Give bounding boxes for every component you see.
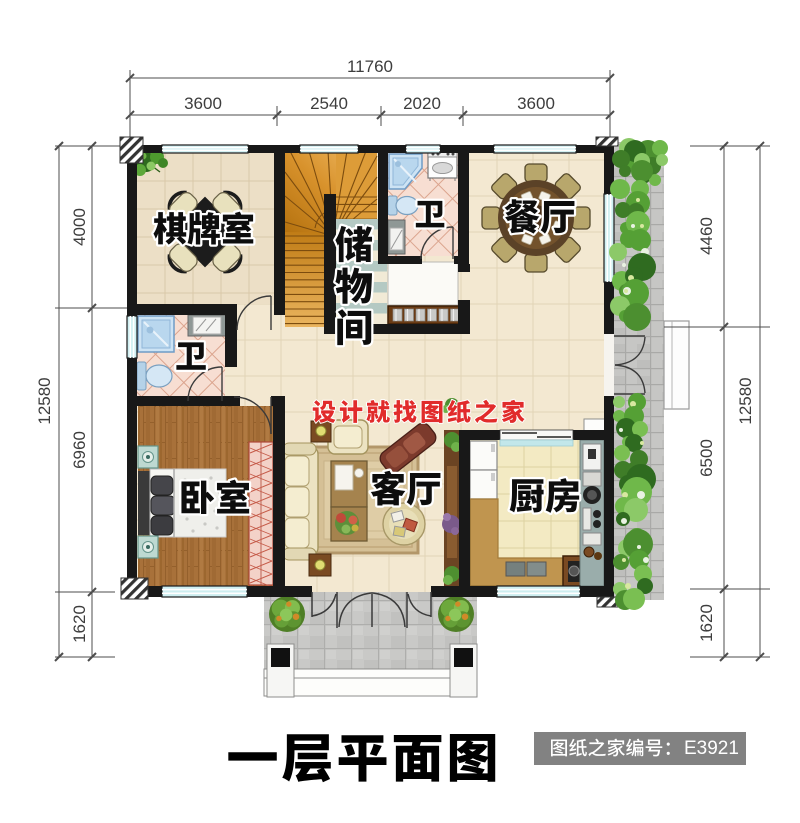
svg-text:1620: 1620 [697, 604, 716, 642]
svg-text:2020: 2020 [403, 94, 441, 113]
svg-text:4000: 4000 [70, 208, 89, 246]
svg-text:3600: 3600 [517, 94, 555, 113]
svg-text:2540: 2540 [310, 94, 348, 113]
svg-text:11760: 11760 [347, 57, 393, 76]
svg-text:12580: 12580 [35, 377, 54, 424]
svg-text:4460: 4460 [697, 217, 716, 255]
svg-text:1620: 1620 [70, 605, 89, 643]
svg-text:6960: 6960 [70, 431, 89, 469]
svg-text:6500: 6500 [697, 439, 716, 477]
svg-text:12580: 12580 [736, 377, 755, 424]
svg-text:E3921: E3921 [684, 738, 739, 759]
svg-text:3600: 3600 [184, 94, 222, 113]
